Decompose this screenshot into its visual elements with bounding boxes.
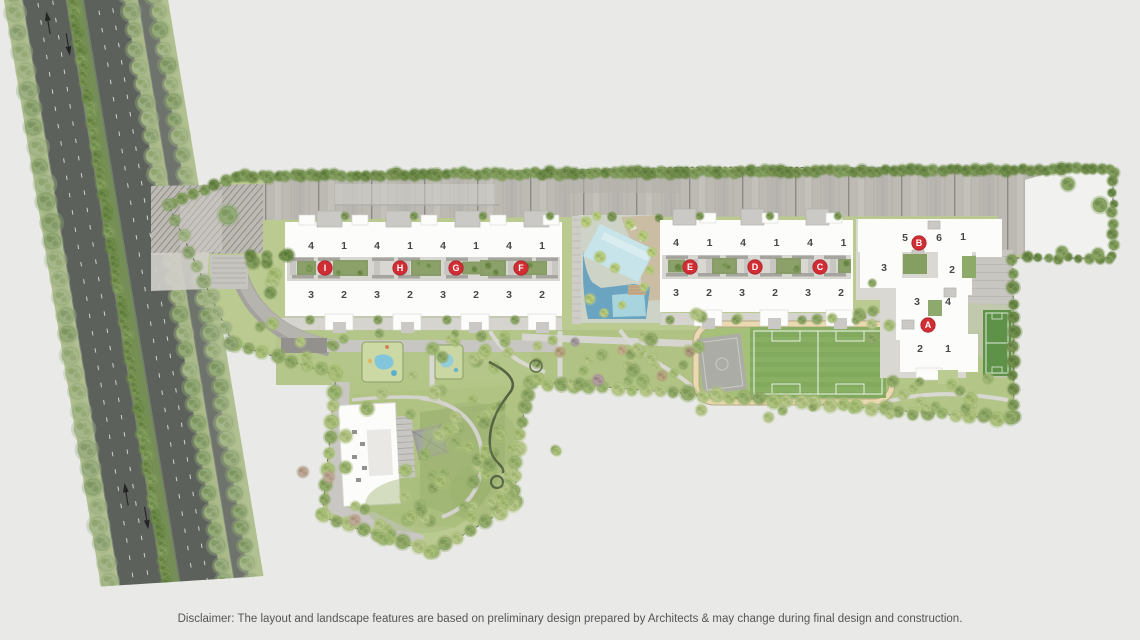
- svg-text:Disclaimer: The layout and lan: Disclaimer: The layout and landscape fea…: [178, 613, 963, 625]
